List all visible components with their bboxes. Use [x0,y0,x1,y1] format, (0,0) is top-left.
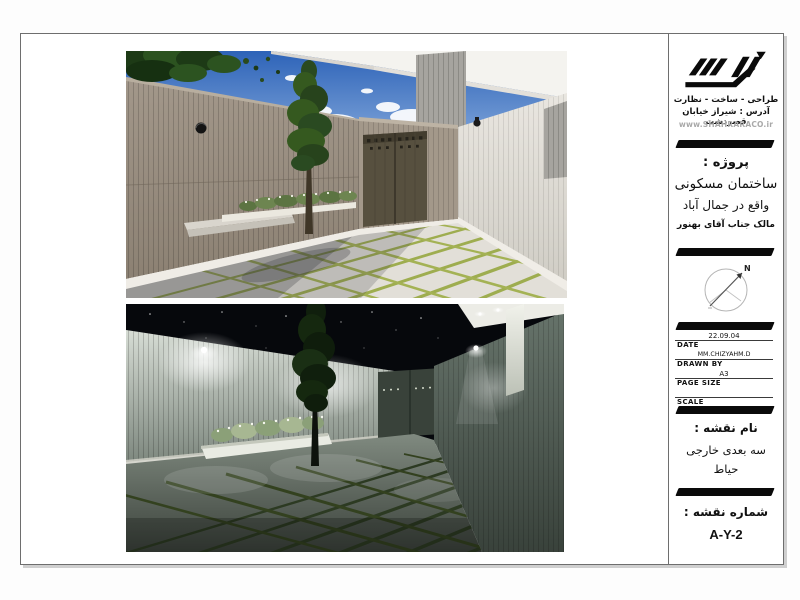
page-size-value: A3 [675,370,773,378]
sheet-number-value: A-Y-2 [669,528,783,543]
drawing-sheet: طراحی - ساخت - نظارت آدرس : شیراز خیابان… [20,33,784,565]
section-divider-bar [675,248,774,256]
sheet-number-label: شماره نقشه : [669,506,783,520]
sheet-name-line1: سه بعدی خارجی [669,444,783,457]
date-label: DATE [675,341,773,350]
project-location: واقع در جمال آباد [669,199,783,213]
project-building: ساختمان مسکونی [669,177,783,193]
day-courtyard-render [126,51,567,298]
section-divider-bar [675,488,774,496]
sheet-name-line2: حیاط [669,463,783,476]
section-divider-bar [675,406,774,414]
scale-value [675,389,773,397]
sheet-name-label: نام نقشه : [669,422,783,436]
courtyard-gate [363,131,427,227]
page-background: طراحی - ساخت - نظارت آدرس : شیراز خیابان… [0,0,800,600]
north-label: N [744,264,751,273]
night-gate [378,368,442,438]
project-owner: مالک جناب آقای بهنور [669,220,783,230]
date-value: 22.09.04 [675,332,773,340]
section-divider-bar [675,322,774,330]
company-website: www.SHAHRARACO.ir [669,121,783,130]
night-courtyard-render [126,304,564,552]
sheet-meta: 22.09.04 DATE MM.CHIZYAHM.D DRAWN BY A3 … [675,332,773,408]
page-size-label: PAGE SIZE [675,379,773,388]
title-block: طراحی - ساخت - نظارت آدرس : شیراز خیابان… [668,34,783,564]
lit-panel [506,304,524,396]
north-arrow-compass: N [696,260,756,320]
drawn-by-value: MM.CHIZYAHM.D [675,351,773,359]
wall-lamp-left [196,123,207,134]
company-tagline: طراحی - ساخت - نظارت [669,96,783,106]
drawn-by-label: DRAWN BY [675,360,773,369]
company-logo [683,50,769,94]
section-divider-bar [675,140,774,148]
project-label: پروژه : [669,156,783,171]
